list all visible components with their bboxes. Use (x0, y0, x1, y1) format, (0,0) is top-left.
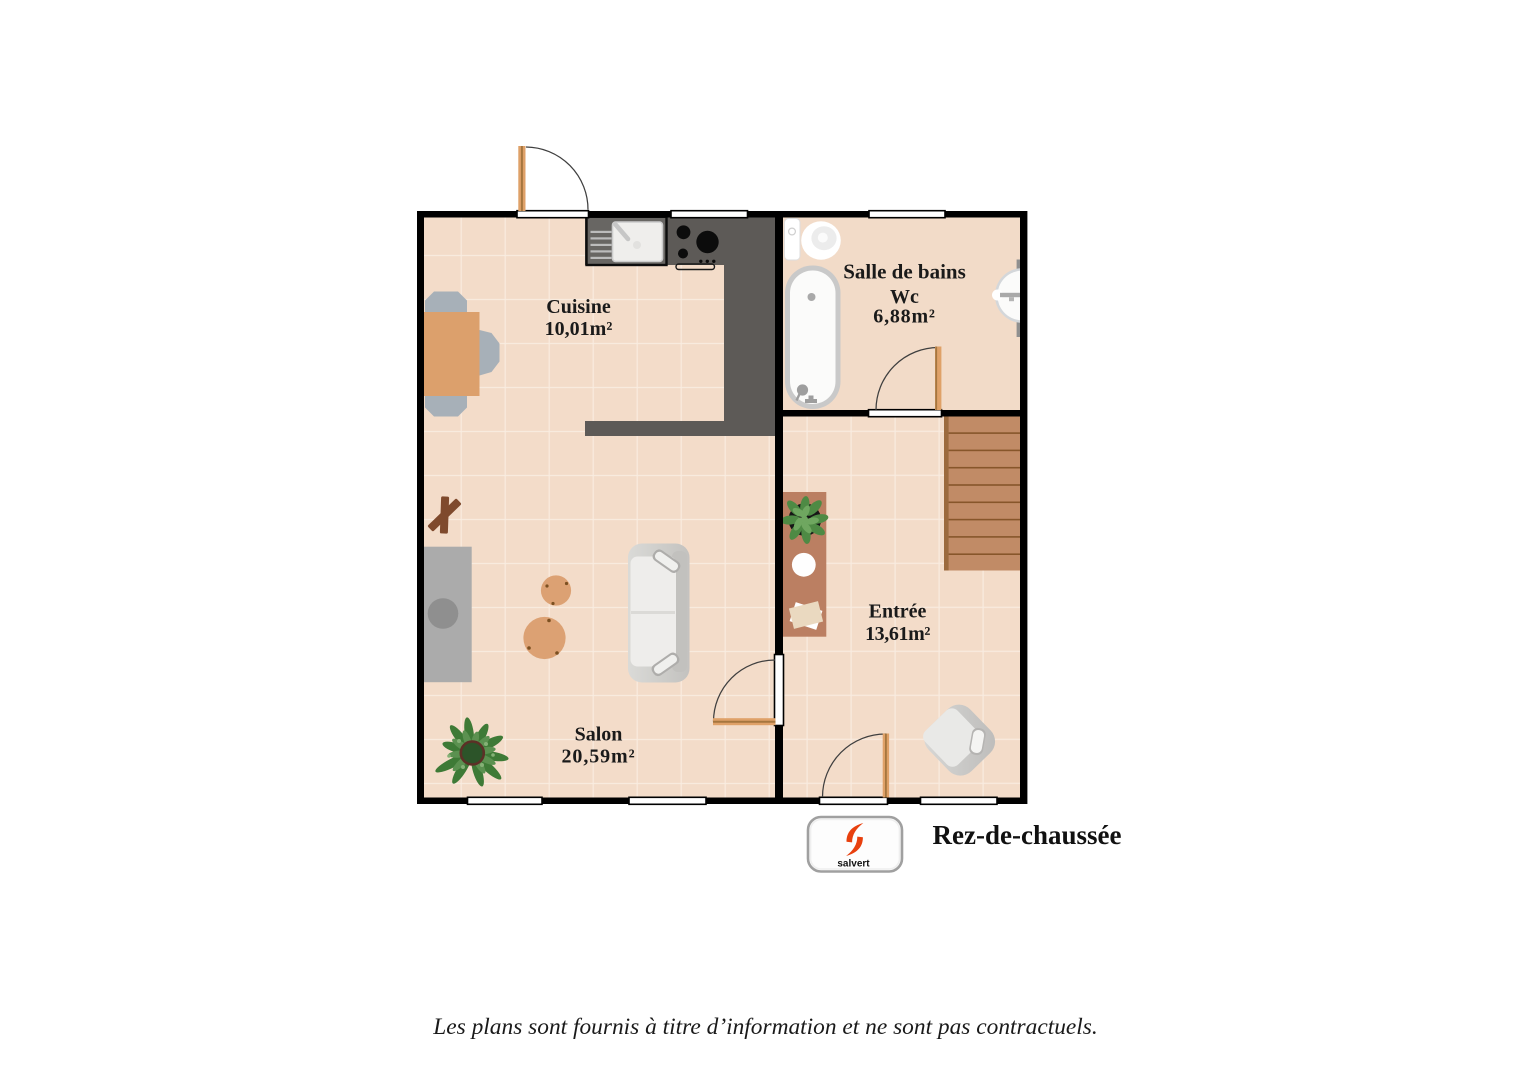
svg-text:20,59m²: 20,59m² (562, 746, 636, 768)
svg-text:Les plans sont fournis à titre: Les plans sont fournis à titre d’informa… (432, 1014, 1097, 1040)
svg-text:Rez-de-chaussée: Rez-de-chaussée (933, 820, 1122, 850)
svg-text:6,88m²: 6,88m² (873, 306, 935, 328)
svg-text:10,01m²: 10,01m² (545, 318, 613, 340)
svg-text:Entrée: Entrée (869, 601, 927, 623)
svg-text:Salle de bains: Salle de bains (843, 260, 966, 284)
svg-text:13,61m²: 13,61m² (865, 623, 930, 645)
svg-text:salvert: salvert (837, 859, 870, 870)
svg-text:Cuisine: Cuisine (546, 296, 611, 318)
svg-text:Salon: Salon (575, 724, 623, 746)
